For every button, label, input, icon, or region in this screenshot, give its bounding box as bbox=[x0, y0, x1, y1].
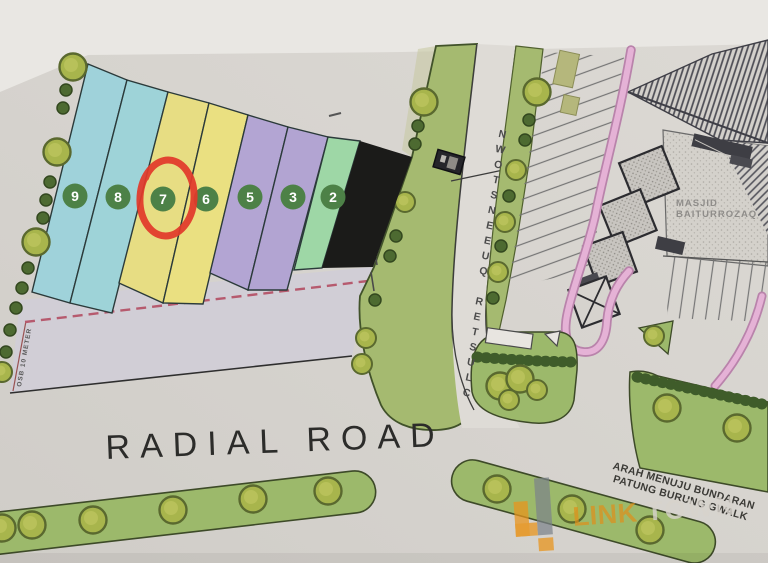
svg-text:7: 7 bbox=[159, 191, 167, 207]
plot-number-3: 3 bbox=[281, 185, 306, 210]
plot-number-9: 9 bbox=[63, 184, 88, 209]
junction-island bbox=[471, 328, 577, 423]
svg-text:BAITURROZAQ: BAITURROZAQ bbox=[676, 209, 757, 220]
parking-stalls-se bbox=[663, 256, 768, 322]
svg-text:2: 2 bbox=[329, 189, 337, 205]
plot-number-2: 2 bbox=[321, 185, 346, 210]
watermark-text-town: TOWN bbox=[645, 490, 737, 526]
plot-number-5: 5 bbox=[238, 185, 263, 210]
svg-text:9: 9 bbox=[71, 188, 79, 204]
svg-text:5: 5 bbox=[246, 189, 254, 205]
svg-text:6: 6 bbox=[202, 191, 210, 207]
hedge-row bbox=[477, 357, 571, 362]
site-plan-photo: OSB 10 METER bbox=[0, 0, 768, 563]
svg-text:3: 3 bbox=[289, 189, 297, 205]
site-plan-canvas: OSB 10 METER bbox=[0, 0, 768, 563]
plot-number-7: 7 bbox=[151, 187, 176, 212]
plot-number-8: 8 bbox=[106, 185, 131, 210]
svg-text:8: 8 bbox=[114, 189, 122, 205]
photo-edge-shadow bbox=[0, 553, 768, 563]
svg-text:MASJID: MASJID bbox=[676, 198, 718, 209]
watermark-text-link: LINK bbox=[572, 497, 639, 531]
